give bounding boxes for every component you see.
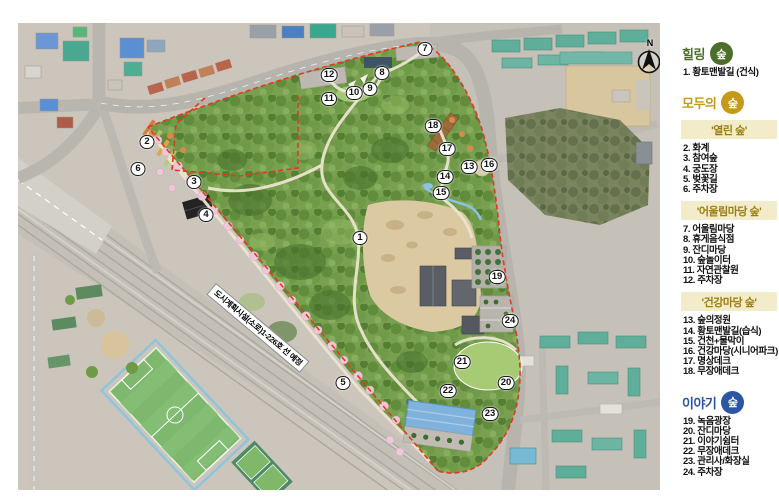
map-marker-10: 10	[346, 86, 363, 100]
park-masterplan-page: N 도시계획시설(소로)1-226호 선 예정 1234567891011121…	[0, 0, 779, 502]
map-marker-12: 12	[321, 68, 338, 82]
legend-banner: '건강마당 숲'	[681, 292, 777, 311]
legend-banner: '열린 숲'	[681, 120, 777, 139]
map-marker-24: 24	[502, 314, 519, 328]
map-marker-13: 13	[461, 160, 478, 174]
map-marker-3: 3	[187, 175, 202, 189]
map-marker-22: 22	[440, 384, 457, 398]
legend-item: 12. 주차장	[683, 276, 777, 286]
map-marker-16: 16	[481, 158, 498, 172]
swimming-pool-building	[403, 400, 476, 451]
map-marker-6: 6	[131, 162, 146, 176]
forest-badge-icon: 숲	[721, 91, 744, 114]
legend-item: 6. 주차장	[683, 185, 777, 195]
legend-section-name: 모두의	[682, 93, 716, 112]
legend-panel: 힐링숲1. 황토맨발길 (건식)모두의숲'열린 숲'2. 화계3. 참여숲4. …	[681, 42, 777, 478]
map-marker-9: 9	[363, 82, 378, 96]
map-marker-4: 4	[199, 208, 214, 222]
legend-section-name: 이야기	[682, 393, 716, 412]
map-marker-7: 7	[418, 42, 433, 56]
map-marker-15: 15	[433, 186, 450, 200]
map-marker-17: 17	[439, 142, 456, 156]
map-marker-14: 14	[437, 170, 454, 184]
legend-item: 24. 주차장	[683, 468, 777, 478]
map-marker-5: 5	[336, 376, 351, 390]
forest-badge-icon: 숲	[721, 391, 744, 414]
legend-section-title-everyone: 모두의숲	[682, 91, 777, 114]
map-marker-19: 19	[489, 270, 506, 284]
map-marker-1: 1	[353, 231, 368, 245]
legend-section-gap	[681, 78, 777, 91]
legend-section-title-healing: 힐링숲	[682, 42, 777, 65]
map-marker-2: 2	[140, 135, 155, 149]
legend-section-title-story: 이야기숲	[682, 391, 777, 414]
legend-item: 1. 황토맨발길 (건식)	[683, 68, 777, 78]
map-marker-21: 21	[454, 355, 471, 369]
map-marker-18: 18	[425, 119, 442, 133]
forest-badge-icon: 숲	[710, 42, 733, 65]
map-marker-11: 11	[321, 92, 337, 106]
legend-item: 18. 무장애데크	[683, 367, 777, 377]
map-marker-20: 20	[498, 376, 515, 390]
park-master-plan-map	[0, 0, 779, 502]
map-marker-23: 23	[482, 407, 499, 421]
legend-section-gap	[681, 378, 777, 391]
legend-section-name: 힐링	[682, 44, 705, 63]
legend-banner: '어울림마당 숲'	[681, 201, 777, 220]
compass-north-label: N	[644, 38, 656, 48]
map-marker-8: 8	[375, 66, 390, 80]
